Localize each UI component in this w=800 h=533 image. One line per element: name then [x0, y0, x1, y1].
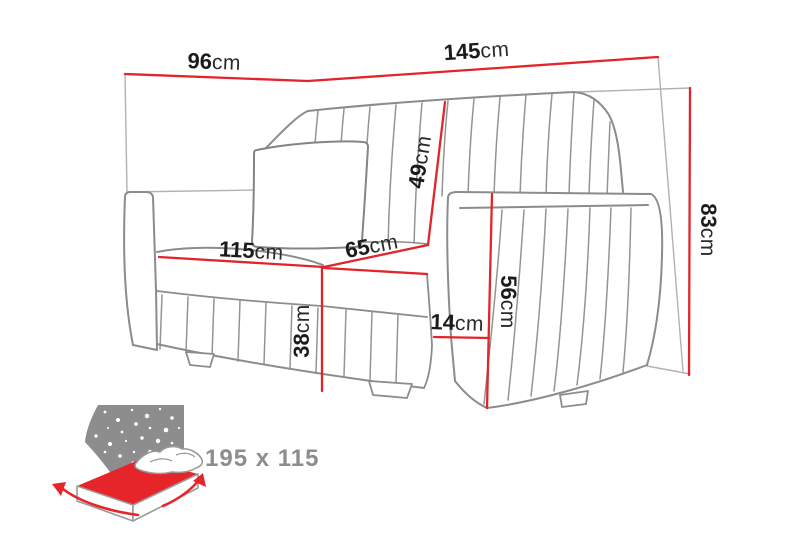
- sofa-leg-right: [369, 381, 412, 398]
- dim-label-back-width-left: 96cm: [187, 48, 241, 75]
- box-left-edge: [125, 74, 127, 193]
- dim-label-total-height: 83cm: [696, 203, 721, 256]
- dim-line-armrest-width: [434, 337, 489, 338]
- dim-line-total-height: [689, 88, 690, 375]
- sofa-dimension-diagram: 96cm 145cm 83cm 49cm 115cm 65cm 38cm 56c…: [0, 0, 800, 533]
- sleeping-function-icon: 195 x 115: [52, 405, 319, 521]
- box-back-right-edge: [658, 57, 683, 371]
- sofa-pillow: [252, 141, 368, 248]
- dim-label-back-width-right: 145cm: [443, 36, 510, 66]
- sofa-armrest-left: [124, 192, 157, 350]
- dim-label-seat-width: 115cm: [219, 236, 285, 264]
- diagram-canvas: 96cm 145cm 83cm 49cm 115cm 65cm 38cm 56c…: [0, 0, 800, 533]
- box-right-top-edge: [577, 88, 690, 92]
- dim-label-seat-height: 38cm: [289, 304, 314, 357]
- sofa-leg-rear: [560, 391, 588, 407]
- sofa-leg-left: [186, 352, 214, 367]
- sleeping-size-label: 195 x 115: [205, 445, 319, 472]
- sofa-armrest-right: [447, 192, 662, 408]
- dim-line-back-width-left: [125, 74, 308, 81]
- dim-label-armrest-width: 14cm: [430, 309, 484, 336]
- dim-label-armrest-height: 56cm: [496, 275, 521, 328]
